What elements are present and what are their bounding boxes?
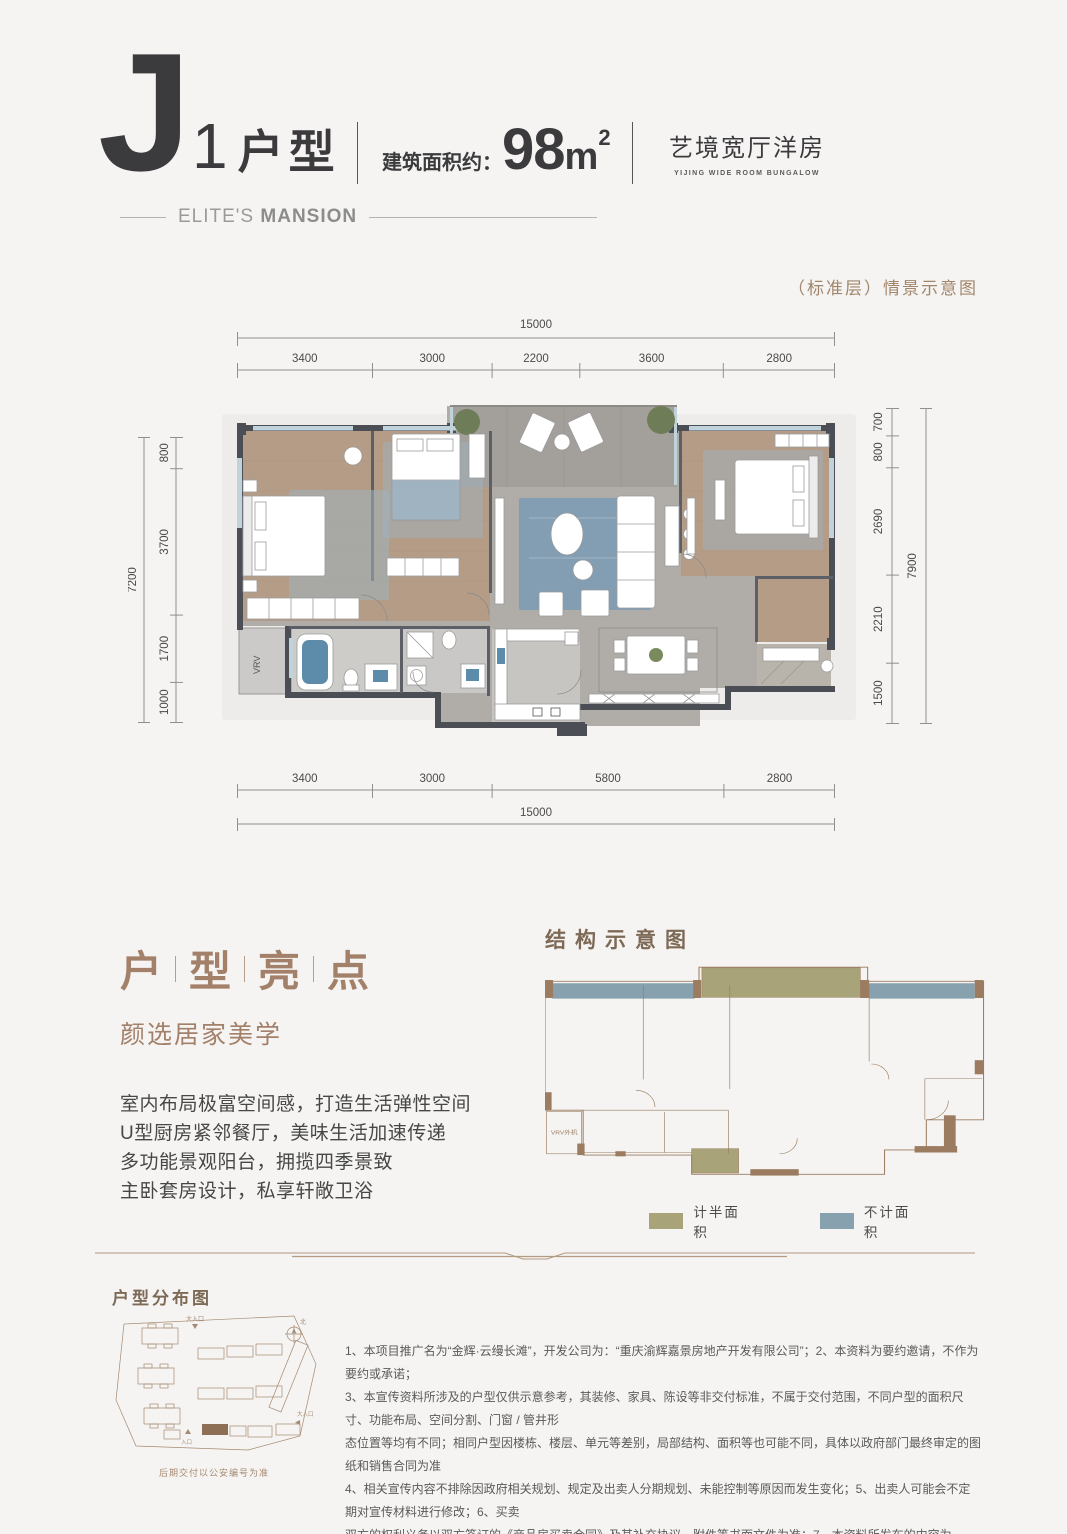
disclaimer-line: 4、相关宣传内容不排除因政府相关规划、规定及出卖人分期规划、未能控制等原因而发生… <box>345 1478 981 1524</box>
dim-top-3: 2200 <box>523 353 549 365</box>
structure-title: 结构示意图 <box>545 924 990 954</box>
brand-row: ELITE'S MANSION <box>120 206 597 228</box>
dim-right-5: 1500 <box>873 680 885 706</box>
legend-swatch-excluded-area <box>820 1213 854 1229</box>
area-exponent: 2 <box>598 125 610 151</box>
disclaimer-line: 1、本项目推广名为“金辉·云缦长滩”，开发公司为：“重庆渝辉嘉景房地产开发有限公… <box>345 1340 981 1386</box>
entrance-bottom-label: 入口 <box>181 1439 192 1446</box>
floor-plan: VRV <box>237 398 837 740</box>
brand-line-left <box>120 217 166 218</box>
title-separator <box>244 956 245 982</box>
legend-item: 计半面积 <box>649 1201 750 1241</box>
brand-light: ELITE'S <box>178 206 254 227</box>
entrance-top-label: 大入口 <box>186 1315 204 1323</box>
area-label: 建筑面积约： <box>382 123 502 203</box>
dim-bottom-4: 2800 <box>767 773 793 785</box>
unit-type-suffix: 户型 <box>238 102 340 202</box>
highlights-section: 户 型 亮 点 颜选居家美学 室内布局极富空间感，打造生活弹性空间 U型厨房紧邻… <box>120 938 550 1211</box>
dim-bottom-total: 15000 <box>520 807 552 819</box>
north-label: 北 <box>300 1318 306 1326</box>
brand-bold: MANSION <box>260 206 357 227</box>
highlight-item: 多功能景观阳台，拥揽四季景致 <box>120 1153 550 1172</box>
vrv-label: VRV <box>252 656 262 674</box>
structure-legend: 计半面积 不计面积 <box>649 1201 990 1241</box>
site-plan: 大入口 大入口 入口 北 <box>98 1312 330 1464</box>
highlight-item: 室内布局极富空间感，打造生活弹性空间 <box>120 1095 550 1114</box>
plan-caption: （标准层）情景示意图 <box>788 274 978 299</box>
highlight-item: U型厨房紧邻餐厅，美味生活加速传递 <box>120 1124 550 1143</box>
dims-right: 700 800 2690 2210 1500 7900 <box>866 408 938 724</box>
brand-text: ELITE'S MANSION <box>178 206 357 228</box>
highlights-subtitle: 颜选居家美学 <box>120 1015 550 1051</box>
legend-label: 计半面积 <box>693 1201 749 1241</box>
slogan-en: YIJING WIDE ROOM BUNGALOW <box>652 170 842 177</box>
area-block: 建筑面积约： 98 m 2 <box>382 110 611 190</box>
slogan-block: 艺境宽厅洋房 YIJING WIDE ROOM BUNGALOW <box>652 128 842 177</box>
dim-left-1: 800 <box>159 443 171 462</box>
dim-top-5: 2800 <box>766 353 792 365</box>
area-value: 98 <box>502 110 565 190</box>
structure-vrv-label: VRV外机 <box>551 1129 578 1136</box>
dim-right-total: 7900 <box>907 553 919 579</box>
dim-top-1: 3400 <box>292 353 318 365</box>
legend-swatch-half-area <box>649 1213 683 1229</box>
structure-section: 结构示意图 <box>545 924 990 1241</box>
header-divider-1 <box>357 122 358 184</box>
slogan-cn: 艺境宽厅洋房 <box>652 128 842 163</box>
brand-line-right <box>369 217 597 218</box>
header-divider-2 <box>632 122 633 184</box>
dim-left-3: 1700 <box>159 636 171 662</box>
dim-top-2: 3000 <box>420 353 446 365</box>
highlight-item: 主卧套房设计，私享轩敞卫浴 <box>120 1182 550 1201</box>
highlighted-building <box>202 1424 228 1435</box>
disclaimer-line: 双方的权利义务以双方签订的《商品房买卖合同》及其补充协议、附件等书面文件为准；7… <box>345 1524 981 1534</box>
dim-right-4: 2210 <box>873 606 885 632</box>
unit-type-title: 1 户型 <box>192 96 340 196</box>
title-separator <box>313 956 314 982</box>
unit-type-number: 1 <box>192 96 228 196</box>
dim-left-2: 3700 <box>159 529 171 555</box>
highlights-title-char: 亮 <box>258 938 300 999</box>
legend-label: 不计面积 <box>864 1201 920 1241</box>
dim-bottom-2: 3000 <box>420 773 446 785</box>
unit-type-letter: J <box>98 28 187 196</box>
highlights-title-char: 户 <box>120 938 162 999</box>
disclaimer-line: 态位置等均有不同；相同户型因楼栋、楼层、单元等差别，局部结构、面积等也可能不同，… <box>345 1432 981 1478</box>
dims-top: 15000 3400 3000 2200 3600 2800 <box>237 316 835 380</box>
dim-left-4: 1000 <box>159 689 171 715</box>
disclaimer-line: 3、本宣传资料所涉及的户型仅供示意参考，其装修、家具、陈设等非交付标准，不属于交… <box>345 1386 981 1432</box>
legend-item: 不计面积 <box>820 1201 921 1241</box>
site-plan-caption: 后期交付以公安编号为准 <box>98 1466 330 1479</box>
dim-bottom-1: 3400 <box>292 773 318 785</box>
entrance-right-label: 大入口 <box>297 1410 314 1418</box>
flyer-page: J 1 户型 建筑面积约： 98 m 2 艺境宽厅洋房 YIJING WIDE … <box>0 0 1067 1534</box>
disclaimer: 1、本项目推广名为“金辉·云缦长滩”，开发公司为：“重庆渝辉嘉景房地产开发有限公… <box>345 1340 981 1534</box>
structure-diagram: VRV外机 <box>545 964 985 1182</box>
highlights-title: 户 型 亮 点 <box>120 938 550 999</box>
area-unit: m <box>565 117 599 197</box>
dim-right-2: 800 <box>873 442 885 461</box>
title-separator <box>175 956 176 982</box>
highlights-title-char: 型 <box>189 938 231 999</box>
vrv-platform: VRV <box>239 628 287 694</box>
distribution-title: 户型分布图 <box>112 1284 212 1309</box>
ornament-divider <box>95 1246 975 1266</box>
dim-right-1: 700 <box>873 412 885 431</box>
dim-top-4: 3600 <box>639 353 665 365</box>
highlights-title-char: 点 <box>327 938 369 999</box>
dims-left: 7200 800 3700 1700 1000 <box>128 437 188 723</box>
dims-bottom: 3400 3000 5800 2800 15000 <box>237 770 835 832</box>
dim-bottom-3: 5800 <box>595 773 621 785</box>
dim-right-3: 2690 <box>873 509 885 535</box>
dim-left-total: 7200 <box>128 567 139 593</box>
highlights-list: 室内布局极富空间感，打造生活弹性空间 U型厨房紧邻餐厅，美味生活加速传递 多功能… <box>120 1095 550 1201</box>
dim-top-total: 15000 <box>520 319 552 331</box>
